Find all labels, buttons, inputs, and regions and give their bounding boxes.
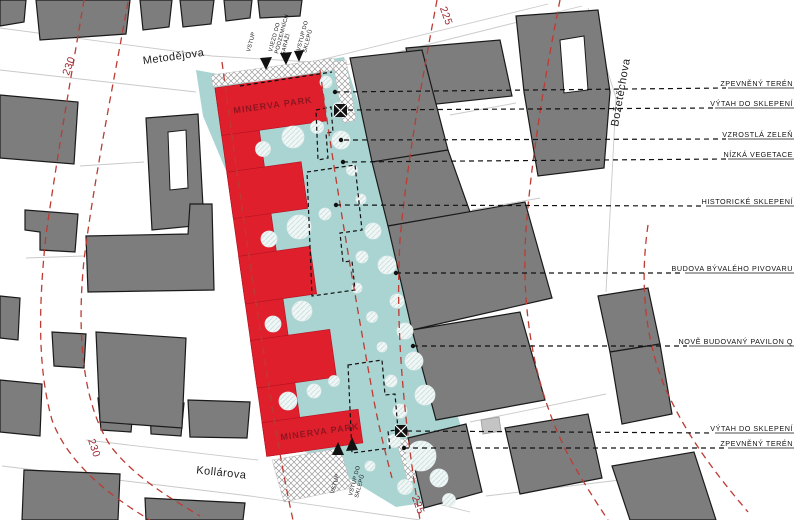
legend-item: VÝTAH DO SKLEPENÍ [710,99,793,108]
legend: ZPEVNĚNÝ TERÉN VÝTAH DO SKLEPENÍ VZROSTL… [672,79,793,448]
legend-item: ZPEVNĚNÝ TERÉN [720,439,793,448]
site-plan: MINERVA PARK MINERVA PARK [0,0,800,520]
site-plan-map: MINERVA PARK MINERVA PARK [0,0,800,520]
contour-label-230-bottom: 230 [85,437,102,459]
legend-item: NÍZKÁ VEGETACE [724,150,793,159]
street-label-kollarova: Kollárova [196,464,248,481]
lift-icon [395,425,407,437]
contour-label-225-top: 225 [437,5,455,27]
street-label-metodejova: Metodějova [142,47,205,68]
lift-icon [334,104,347,117]
legend-item: NOVĚ BUDOVANÝ PAVILON Q [679,337,794,346]
contour-label-230-top: 230 [60,55,78,77]
legend-item: BUDOVA BÝVALÉHO PIVOVARU [672,264,793,273]
street-label-bozetechova: Božetěchova [609,57,633,128]
entry-label-vstup-top: VSTUP [246,31,257,52]
legend-item: VÝTAH DO SKLEPENÍ [710,424,793,433]
legend-item: VZROSTLÁ ZELEŇ [722,130,793,139]
legend-item: HISTORICKÉ SKLEPENÍ [702,197,793,206]
legend-item: ZPEVNĚNÝ TERÉN [720,79,793,88]
